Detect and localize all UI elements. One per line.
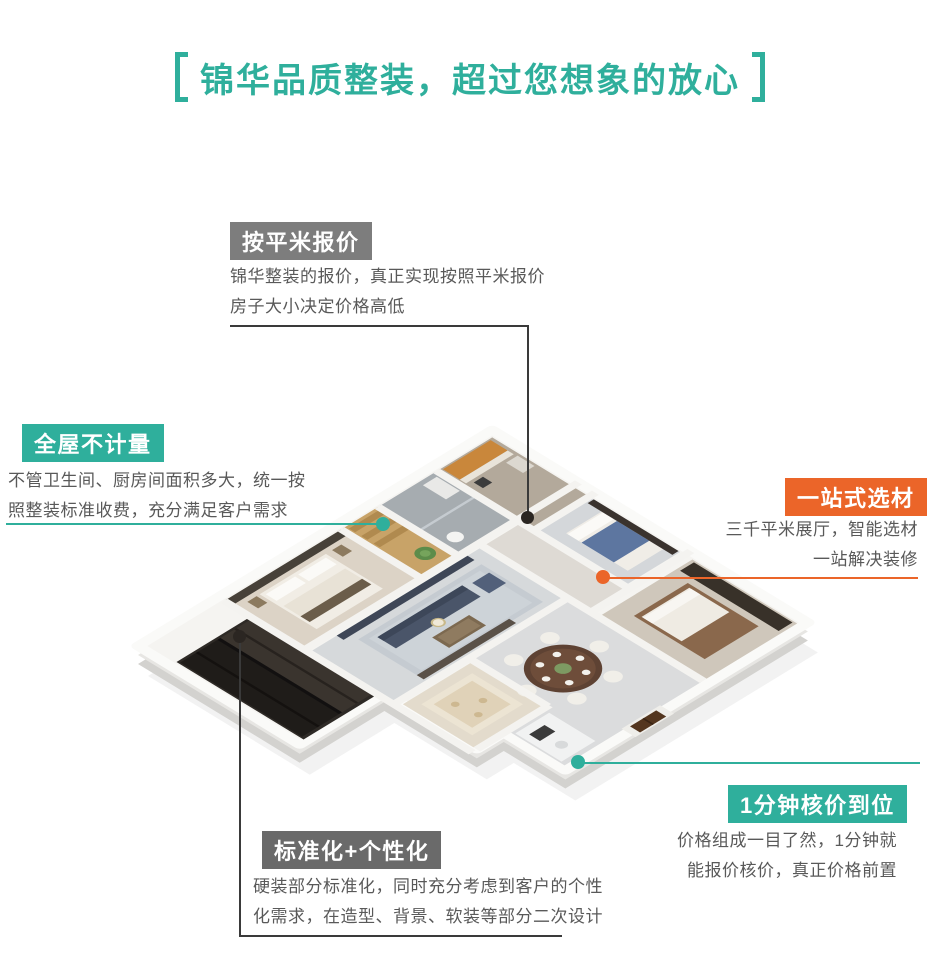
callout-dot-one-stop <box>596 570 610 584</box>
callout-label-one-stop: 一站式选材 <box>785 478 927 516</box>
callout-label-one-minute: 1分钟核价到位 <box>728 785 907 823</box>
callout-dot-standardized <box>233 630 246 643</box>
desc-line: 照整装标准收费，充分满足客户需求 <box>8 496 306 526</box>
desc-line: 价格组成一目了然，1分钟就 <box>677 826 897 856</box>
desc-line: 硬装部分标准化，同时充分考虑到客户的个性 <box>253 872 603 902</box>
connector-standardized-v <box>239 637 241 937</box>
desc-line: 能报价核价，真正价格前置 <box>677 856 897 886</box>
desc-line: 不管卫生间、厨房间面积多大，统一按 <box>8 466 306 496</box>
callout-desc-one-stop: 三千平米展厅，智能选材 一站解决装修 <box>726 515 919 575</box>
desc-line: 房子大小决定价格高低 <box>230 292 545 322</box>
callout-desc-one-minute: 价格组成一目了然，1分钟就 能报价核价，真正价格前置 <box>677 826 897 886</box>
connector-one-minute <box>578 762 920 764</box>
callout-label-whole-house: 全屋不计量 <box>22 424 164 462</box>
desc-line: 锦华整装的报价，真正实现按照平米报价 <box>230 262 545 292</box>
desc-line: 一站解决装修 <box>726 545 919 575</box>
left-bracket-icon <box>175 52 188 102</box>
callout-desc-price-per-sqm: 锦华整装的报价，真正实现按照平米报价 房子大小决定价格高低 <box>230 262 545 322</box>
connector-standardized-h <box>239 935 562 937</box>
desc-line: 三千平米展厅，智能选材 <box>726 515 919 545</box>
callout-desc-standardized: 硬装部分标准化，同时充分考虑到客户的个性 化需求，在造型、背景、软装等部分二次设… <box>253 872 603 932</box>
right-bracket-icon <box>752 52 765 102</box>
callout-dot-one-minute <box>571 755 585 769</box>
callout-dot-whole-house <box>376 517 390 531</box>
connector-price-per-sqm-v <box>527 325 529 518</box>
callout-dot-price-per-sqm <box>521 511 534 524</box>
connector-one-stop <box>603 577 918 579</box>
desc-line: 化需求，在造型、背景、软装等部分二次设计 <box>253 902 603 932</box>
page-title: 锦华品质整装，超过您想象的放心 <box>200 53 740 102</box>
title-row: 锦华品质整装，超过您想象的放心 <box>0 52 940 102</box>
connector-price-per-sqm-h <box>230 325 529 327</box>
callout-label-standardized: 标准化+个性化 <box>262 831 441 869</box>
callout-desc-whole-house: 不管卫生间、厨房间面积多大，统一按 照整装标准收费，充分满足客户需求 <box>8 466 306 526</box>
callout-label-price-per-sqm: 按平米报价 <box>230 222 372 260</box>
poster-canvas: 锦华品质整装，超过您想象的放心 <box>0 0 940 980</box>
